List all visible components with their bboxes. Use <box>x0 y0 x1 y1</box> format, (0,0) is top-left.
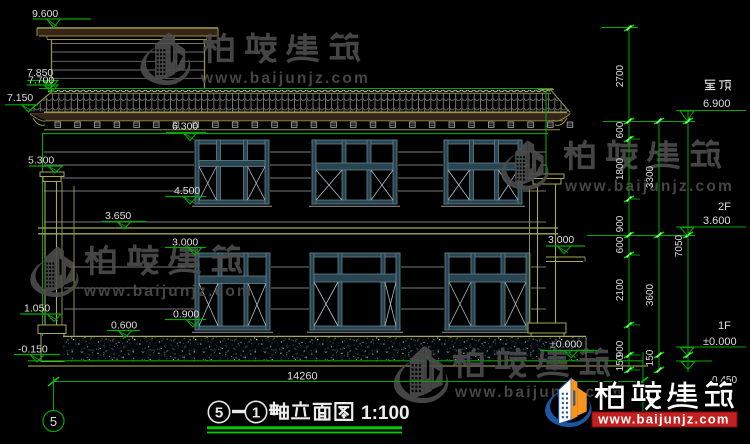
svg-text:9.600: 9.600 <box>32 8 58 20</box>
svg-text:7.150: 7.150 <box>7 92 33 104</box>
svg-text:1.050: 1.050 <box>24 303 50 315</box>
svg-text:0.600: 0.600 <box>111 320 137 332</box>
svg-text:1: 1 <box>252 405 260 422</box>
svg-text:150: 150 <box>615 354 626 371</box>
svg-text:1F: 1F <box>718 320 731 332</box>
svg-text:14260: 14260 <box>287 371 318 383</box>
svg-text:6.300: 6.300 <box>172 121 198 133</box>
svg-text:1:100: 1:100 <box>361 403 410 424</box>
svg-text:2100: 2100 <box>615 278 626 301</box>
svg-text:5: 5 <box>50 414 57 429</box>
svg-text:6.900: 6.900 <box>703 98 731 110</box>
svg-text:www.baijunjz.com: www.baijunjz.com <box>83 283 253 300</box>
svg-text:3300: 3300 <box>645 165 656 188</box>
svg-text:2F: 2F <box>718 201 731 213</box>
svg-text:150: 150 <box>645 349 656 366</box>
svg-text:900: 900 <box>615 215 626 232</box>
svg-text:-0.150: -0.150 <box>18 344 48 356</box>
svg-text:3.000: 3.000 <box>172 237 198 249</box>
svg-text:www.baijunjz.com: www.baijunjz.com <box>200 70 370 87</box>
svg-text:600: 600 <box>615 121 626 138</box>
svg-text:±0.000: ±0.000 <box>550 339 582 351</box>
svg-text:5.300: 5.300 <box>28 155 54 167</box>
svg-text:3.000: 3.000 <box>548 234 574 246</box>
svg-text:www.baijunjz.com: www.baijunjz.com <box>597 412 729 427</box>
svg-text:3.600: 3.600 <box>703 215 731 227</box>
svg-text:5: 5 <box>215 405 223 422</box>
svg-text:7050: 7050 <box>674 234 685 257</box>
svg-text:±0.000: ±0.000 <box>703 336 737 348</box>
svg-text:2700: 2700 <box>615 64 626 87</box>
svg-text:3.650: 3.650 <box>105 210 131 222</box>
svg-text:1800: 1800 <box>615 157 626 180</box>
svg-text:0.900: 0.900 <box>173 309 199 321</box>
svg-text:4.500: 4.500 <box>174 185 200 197</box>
svg-text:3600: 3600 <box>645 283 656 306</box>
svg-text:600: 600 <box>615 236 626 253</box>
